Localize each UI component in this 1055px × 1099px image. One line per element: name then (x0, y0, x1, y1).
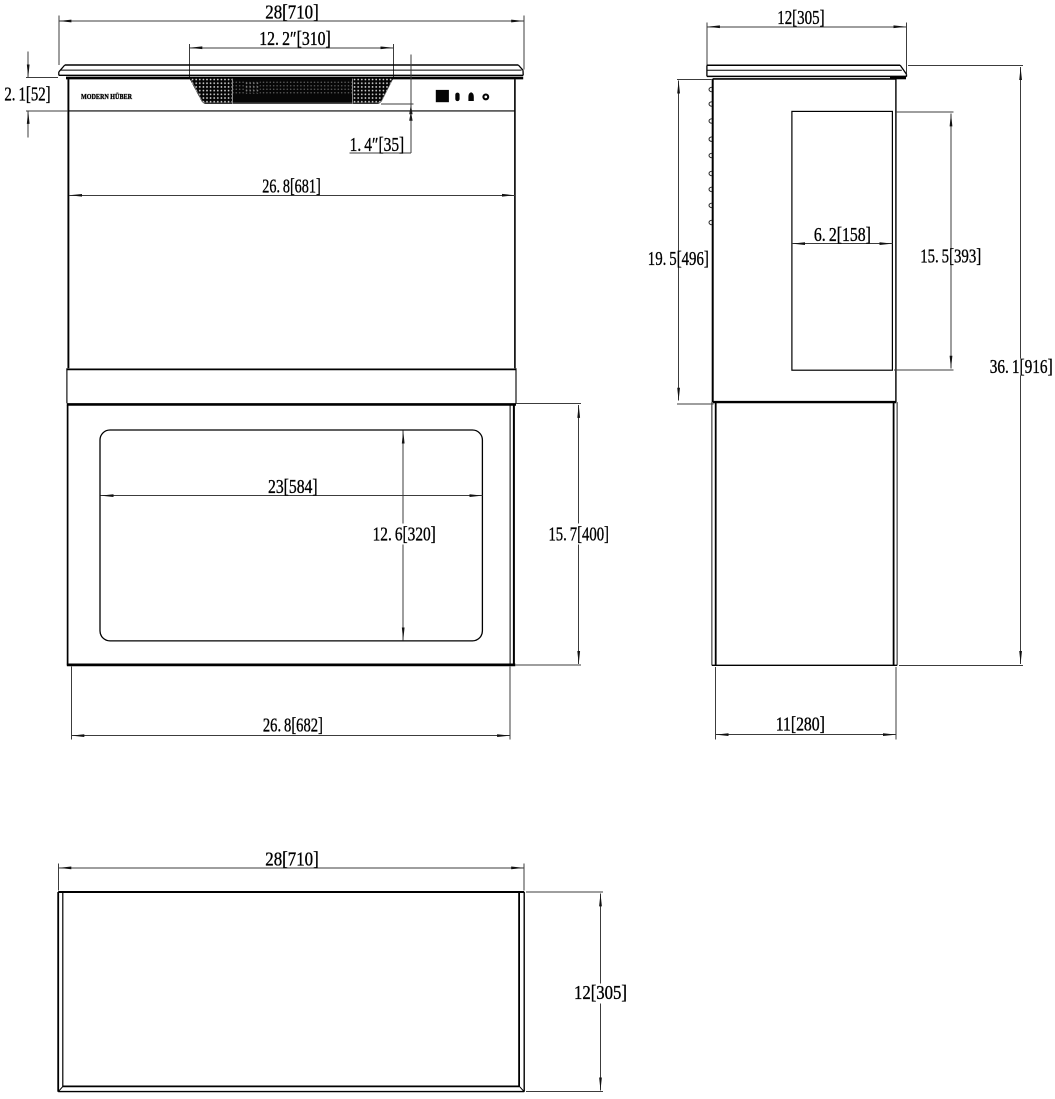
svg-text:12. 6[320]: 12. 6[320] (373, 524, 436, 545)
svg-text:1. 4″[35]: 1. 4″[35] (350, 135, 405, 156)
svg-text:6. 2[158]: 6. 2[158] (814, 225, 871, 246)
svg-text:12[305]: 12[305] (777, 8, 824, 29)
svg-text:MODERN HÜBER: MODERN HÜBER (81, 93, 133, 101)
svg-text:15. 7[400]: 15. 7[400] (548, 524, 609, 545)
svg-text:23[584]: 23[584] (268, 477, 318, 498)
svg-text:19. 5[496]: 19. 5[496] (648, 249, 709, 270)
svg-text:26. 8[681]: 26. 8[681] (262, 177, 320, 198)
svg-text:15. 5[393]: 15. 5[393] (920, 246, 981, 267)
svg-text:26. 8[682]: 26. 8[682] (263, 716, 323, 737)
svg-text:12[305]: 12[305] (574, 983, 627, 1004)
svg-text:12. 2″[310]: 12. 2″[310] (259, 29, 331, 50)
svg-text:28[710]: 28[710] (265, 2, 319, 23)
svg-text:2. 1[52]: 2. 1[52] (4, 84, 50, 105)
svg-text:36. 1[916]: 36. 1[916] (990, 357, 1053, 378)
svg-text:28[710]: 28[710] (265, 849, 319, 870)
svg-text:11[280]: 11[280] (776, 715, 825, 736)
